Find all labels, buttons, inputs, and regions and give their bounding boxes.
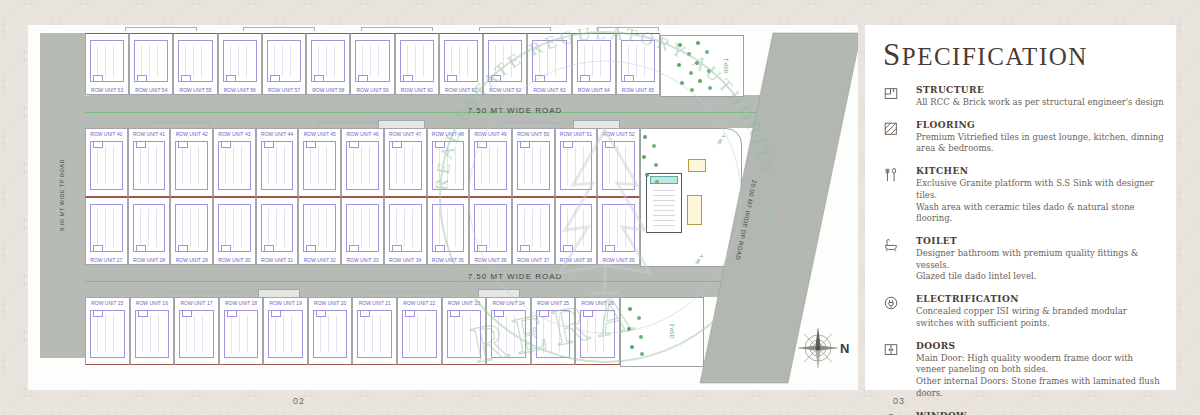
spec-item-heading: WINDOW: [916, 411, 1111, 415]
tree-symbols: [628, 307, 632, 311]
spec-item-heading: DOORS: [916, 341, 1164, 351]
row-unit-plot: ROW UNIT 26: [575, 297, 620, 365]
unit-label: ROW UNIT 42: [171, 131, 212, 137]
spec-item-line: Other internal Doors: Stone frames with …: [916, 376, 1164, 399]
row-unit-plot: ROW UNIT 28: [128, 197, 171, 265]
dimension-line: [361, 27, 433, 31]
unit-label: ROW UNIT 50: [513, 131, 554, 137]
spec-item-text: TOILETDesigner bathroom with premium qua…: [916, 236, 1164, 283]
unit-label: ROW UNIT 40: [86, 131, 127, 137]
specification-page: SPECIFICATION STRUCTUREAll RCC & Brick w…: [865, 25, 1176, 390]
dimension-line: [597, 27, 659, 31]
unit-label: ROW UNIT 45: [299, 131, 340, 137]
row-unit-plot: ROW UNIT 19: [263, 297, 308, 365]
unit-floorplan: [261, 141, 294, 190]
compass-rose: N: [794, 325, 854, 371]
unit-floorplan: [313, 310, 348, 358]
unit-floorplan: [488, 40, 522, 82]
road-centerline: [85, 281, 761, 282]
row-unit-plot: ROW UNIT 27: [85, 197, 128, 265]
unit-label: ROW UNIT 23: [443, 300, 486, 306]
spec-item-heading: TOILET: [916, 236, 1164, 246]
unit-label: ROW UNIT 37: [513, 257, 554, 263]
tree-symbols: [643, 135, 647, 139]
row-unit-plot: ROW UNIT 35: [427, 197, 470, 265]
row-unit-plot: ROW UNIT 37: [512, 197, 555, 265]
row-unit-plot: ROW UNIT 56: [218, 33, 262, 95]
unit-row: ROW UNIT 15ROW UNIT 16ROW UNIT 17ROW UNI…: [85, 297, 620, 365]
amenity-structure: [688, 159, 706, 172]
spec-item-flooring: FLOORINGPremium Vitriefied tiles in gues…: [883, 120, 1164, 155]
unit-label: ROW UNIT 63: [528, 87, 570, 93]
row-unit-plot: ROW UNIT 21: [352, 297, 397, 365]
spec-item-text: FLOORINGPremium Vitriefied tiles in gues…: [916, 120, 1164, 155]
unit-floorplan: [133, 204, 166, 252]
unit-floorplan: [223, 40, 257, 82]
row-unit-plot: ROW UNIT 57: [262, 33, 306, 95]
open-space-label-2: OSP-2: [669, 323, 675, 338]
unit-label: ROW UNIT 64: [573, 87, 615, 93]
row-unit-plot: ROW UNIT 64: [572, 33, 616, 95]
spec-item-text: WINDOWAnodized aluminum window with safe…: [916, 411, 1111, 415]
spec-item-text: STRUCTUREAll RCC & Brick work as per str…: [916, 85, 1164, 109]
unit-floorplan: [179, 310, 214, 358]
unit-label: ROW UNIT 52: [598, 131, 639, 137]
unit-label: ROW UNIT 22: [398, 300, 441, 306]
electrification-icon: [883, 294, 916, 329]
unit-floorplan: [134, 40, 168, 82]
dimension-line: [148, 122, 210, 126]
unit-floorplan: [621, 40, 655, 82]
spec-item-line: Glazed tile dado lintel level.: [916, 271, 1164, 283]
unit-floorplan: [389, 204, 422, 252]
unit-label: ROW UNIT 41: [129, 131, 170, 137]
row-unit-plot: ROW UNIT 43: [213, 128, 256, 197]
row-unit-plot: ROW UNIT 30: [213, 197, 256, 265]
unit-label: ROW UNIT 61: [440, 87, 482, 93]
row-unit-plot: ROW UNIT 47: [384, 128, 427, 197]
unit-label: ROW UNIT 54: [130, 87, 172, 93]
row-unit-plot: ROW UNIT 34: [384, 197, 427, 265]
unit-row: ROW UNIT 27ROW UNIT 28ROW UNIT 29ROW UNI…: [85, 197, 640, 265]
row-unit-plot: ROW UNIT 23: [442, 297, 487, 365]
road-centerline: [85, 112, 765, 113]
unit-row: ROW UNIT 53ROW UNIT 54ROW UNIT 55ROW UNI…: [85, 33, 660, 95]
unit-label: ROW UNIT 32: [299, 257, 340, 263]
window-icon: [883, 411, 916, 415]
unit-floorplan: [402, 310, 437, 358]
dimension-line: [318, 122, 380, 126]
row-unit-plot: ROW UNIT 62: [483, 33, 527, 95]
spec-item-structure: STRUCTUREAll RCC & Brick work as per str…: [883, 85, 1164, 109]
unit-label: ROW UNIT 56: [219, 87, 261, 93]
spec-item-electrification: ELECTRIFICATIONConcealed copper ISI wiri…: [883, 294, 1164, 329]
unit-label: ROW UNIT 59: [351, 87, 393, 93]
row-unit-plot: ROW UNIT 17: [174, 297, 219, 365]
spec-item-doors: DOORSMain Door: High quality woodern fra…: [883, 341, 1164, 400]
unit-label: ROW UNIT 58: [307, 87, 349, 93]
row-unit-plot: ROW UNIT 25: [531, 297, 576, 365]
site-plan-page: 9.00 MT WIDE TP ROAD 7.50 MT WIDE ROAD 7…: [28, 25, 858, 390]
row-unit-plot: ROW UNIT 15: [85, 297, 130, 365]
unit-floorplan: [90, 141, 123, 190]
unit-label: ROW UNIT 17: [175, 300, 218, 306]
row-unit-plot: ROW UNIT 50: [512, 128, 555, 197]
unit-floorplan: [517, 204, 550, 252]
unit-label: ROW UNIT 26: [576, 300, 619, 306]
row-unit-plot: ROW UNIT 52: [597, 128, 640, 197]
dimension-line: [498, 122, 560, 126]
row-unit-plot: ROW UNIT 20: [308, 297, 353, 365]
unit-floorplan: [261, 204, 294, 252]
dimension-line: [243, 27, 315, 31]
row-unit-plot: ROW UNIT 63: [527, 33, 571, 95]
row-unit-plot: ROW UNIT 40: [85, 128, 128, 197]
tree-symbols: [696, 41, 700, 45]
row-unit-plot: ROW UNIT 65: [616, 33, 660, 95]
open-space-label-1: OSP-1: [723, 58, 729, 73]
unit-label: ROW UNIT 28: [129, 257, 170, 263]
unit-floorplan: [303, 204, 336, 252]
row-unit-plot: ROW UNIT 59: [350, 33, 394, 95]
spec-item-toilet: TOILETDesigner bathroom with premium qua…: [883, 236, 1164, 283]
spec-item-text: ELECTRIFICATIONConcealed copper ISI wiri…: [916, 294, 1164, 329]
row-unit-plot: ROW UNIT 42: [170, 128, 213, 197]
specification-list: STRUCTUREAll RCC & Brick work as per str…: [883, 85, 1164, 415]
doors-icon: [883, 341, 916, 400]
unit-label: ROW UNIT 34: [385, 257, 426, 263]
unit-label: ROW UNIT 51: [556, 131, 597, 137]
unit-floorplan: [90, 204, 123, 252]
kitchen-icon: [883, 166, 916, 225]
row-unit-plot: ROW UNIT 48: [427, 128, 470, 197]
row-unit-plot: ROW UNIT 60: [395, 33, 439, 95]
unit-label: ROW UNIT 44: [257, 131, 298, 137]
row-unit-plot: ROW UNIT 31: [256, 197, 299, 265]
row-unit-plot: ROW UNIT 49: [469, 128, 512, 197]
row-unit-plot: ROW UNIT 55: [173, 33, 217, 95]
unit-label: ROW UNIT 43: [214, 131, 255, 137]
flooring-icon: [883, 120, 916, 155]
spec-item-heading: KITCHEN: [916, 166, 1164, 176]
unit-floorplan: [444, 40, 478, 82]
row-unit-plot: ROW UNIT 44: [256, 128, 299, 197]
unit-label: ROW UNIT 20: [309, 300, 352, 306]
spec-item-window: WINDOWAnodized aluminum window with safe…: [883, 411, 1164, 415]
unit-label: ROW UNIT 18: [220, 300, 263, 306]
dimension-line: [368, 291, 440, 295]
row-unit-plot: ROW UNIT 51: [555, 128, 598, 197]
unit-label: ROW UNIT 21: [353, 300, 396, 306]
row-unit-plot: ROW UNIT 46: [341, 128, 384, 197]
page-number-right: 03: [893, 396, 905, 406]
compass-north-label: N: [840, 341, 849, 356]
spec-item-heading: FLOORING: [916, 120, 1164, 130]
unit-label: ROW UNIT 24: [487, 300, 530, 306]
unit-label: ROW UNIT 30: [214, 257, 255, 263]
unit-floorplan: [135, 310, 170, 358]
unit-floorplan: [175, 141, 208, 190]
tree-symbols: [678, 43, 682, 47]
unit-label: ROW UNIT 36: [470, 257, 511, 263]
unit-label: ROW UNIT 25: [532, 300, 575, 306]
row-unit-plot: ROW UNIT 54: [129, 33, 173, 95]
spec-item-heading: ELECTRIFICATION: [916, 294, 1164, 304]
unit-floorplan: [357, 310, 392, 358]
unit-label: ROW UNIT 62: [484, 87, 526, 93]
row-unit-plot: ROW UNIT 32: [298, 197, 341, 265]
unit-label: ROW UNIT 27: [86, 257, 127, 263]
unit-floorplan: [560, 141, 593, 190]
unit-floorplan: [474, 204, 507, 252]
row-unit-plot: ROW UNIT 61: [439, 33, 483, 95]
amenity-structure: [687, 195, 702, 225]
row-unit-plot: ROW UNIT 22: [397, 297, 442, 365]
spec-item-heading: STRUCTURE: [916, 85, 1164, 95]
unit-label: ROW UNIT 57: [263, 87, 305, 93]
unit-label: ROW UNIT 53: [86, 87, 128, 93]
unit-label: ROW UNIT 31: [257, 257, 298, 263]
clubhouse-building: [646, 173, 682, 233]
unit-label: ROW UNIT 49: [470, 131, 511, 137]
unit-floorplan: [602, 204, 635, 252]
row-unit-plot: ROW UNIT 33: [341, 197, 384, 265]
unit-floorplan: [311, 40, 345, 82]
top-road-label: 7.50 MT WIDE ROAD: [445, 106, 585, 115]
row-unit-plot: ROW UNIT 16: [130, 297, 175, 365]
unit-floorplan: [267, 40, 301, 82]
unit-floorplan: [90, 40, 124, 82]
spec-item-kitchen: KITCHENExclusive Granite platform with S…: [883, 166, 1164, 225]
unit-floorplan: [303, 141, 336, 190]
row-unit-plot: ROW UNIT 24: [486, 297, 531, 365]
unit-floorplan: [560, 204, 593, 252]
spec-item-text: KITCHENExclusive Granite platform with S…: [916, 166, 1164, 225]
unit-label: ROW UNIT 33: [342, 257, 383, 263]
spec-item-line: Main Door: High quality woodern frame do…: [916, 353, 1164, 376]
dimension-line: [125, 27, 197, 31]
unit-floorplan: [175, 204, 208, 252]
unit-floorplan: [432, 204, 465, 252]
unit-floorplan: [224, 310, 259, 358]
spec-item-line: Premium Vitriefied tiles in guest lounge…: [916, 132, 1164, 155]
unit-floorplan: [577, 40, 611, 82]
dimension-line: [168, 291, 240, 295]
page-number-left: 02: [293, 396, 305, 406]
brochure-spread: 9.00 MT WIDE TP ROAD 7.50 MT WIDE ROAD 7…: [0, 0, 1200, 415]
unit-label: ROW UNIT 48: [428, 131, 469, 137]
unit-floorplan: [218, 141, 251, 190]
row-unit-plot: ROW UNIT 29: [170, 197, 213, 265]
unit-floorplan: [400, 40, 434, 82]
structure-icon: [883, 85, 916, 109]
unit-label: ROW UNIT 60: [396, 87, 438, 93]
unit-floorplan: [491, 310, 526, 358]
unit-label: ROW UNIT 47: [385, 131, 426, 137]
unit-row: ROW UNIT 40ROW UNIT 41ROW UNIT 42ROW UNI…: [85, 128, 640, 197]
unit-floorplan: [580, 310, 615, 358]
spec-item-line: Exclusive Granite platform with S.S Sink…: [916, 178, 1164, 201]
unit-floorplan: [474, 141, 507, 190]
unit-floorplan: [268, 310, 303, 358]
unit-floorplan: [133, 141, 166, 190]
row-unit-plot: ROW UNIT 39: [597, 197, 640, 265]
unit-label: ROW UNIT 35: [428, 257, 469, 263]
unit-label: ROW UNIT 19: [264, 300, 307, 306]
bottom-road-label: 7.50 MT WIDE ROAD: [445, 272, 585, 281]
row-unit-plot: ROW UNIT 18: [219, 297, 264, 365]
unit-floorplan: [517, 141, 550, 190]
unit-floorplan: [532, 40, 566, 82]
row-unit-plot: ROW UNIT 45: [298, 128, 341, 197]
unit-floorplan: [346, 204, 379, 252]
row-unit-plot: ROW UNIT 58: [306, 33, 350, 95]
unit-label: ROW UNIT 55: [174, 87, 216, 93]
unit-floorplan: [355, 40, 389, 82]
unit-label: ROW UNIT 46: [342, 131, 383, 137]
unit-floorplan: [90, 310, 125, 358]
unit-floorplan: [447, 310, 482, 358]
spec-item-text: DOORSMain Door: High quality woodern fra…: [916, 341, 1164, 400]
tp-road-label: 9.00 MT WIDE TP ROAD: [59, 159, 65, 231]
unit-label: ROW UNIT 39: [598, 257, 639, 263]
spec-item-line: Wash area with ceramic tiles dado & natu…: [916, 202, 1164, 225]
unit-label: ROW UNIT 65: [617, 87, 659, 93]
spec-item-line: All RCC & Brick work as per structural e…: [916, 97, 1164, 109]
spec-item-line: Concealed copper ISI wiring & branded mo…: [916, 306, 1164, 329]
spec-item-line: Designer bathroom with premium quality f…: [916, 248, 1164, 271]
unit-floorplan: [346, 141, 379, 190]
row-unit-plot: ROW UNIT 53: [85, 33, 129, 95]
unit-floorplan: [602, 141, 635, 190]
unit-floorplan: [178, 40, 212, 82]
unit-floorplan: [536, 310, 571, 358]
unit-label: ROW UNIT 15: [86, 300, 129, 306]
unit-label: ROW UNIT 29: [171, 257, 212, 263]
unit-label: ROW UNIT 38: [556, 257, 597, 263]
open-space-plot-1: [660, 35, 744, 97]
dimension-line: [479, 27, 551, 31]
page-title: SPECIFICATION: [883, 37, 1088, 73]
unit-floorplan: [432, 141, 465, 190]
unit-label: ROW UNIT 16: [131, 300, 174, 306]
row-unit-plot: ROW UNIT 41: [128, 128, 171, 197]
unit-floorplan: [389, 141, 422, 190]
open-space-plot-2: [620, 297, 704, 367]
row-unit-plot: ROW UNIT 38: [555, 197, 598, 265]
toilet-icon: [883, 236, 916, 283]
unit-floorplan: [218, 204, 251, 252]
row-unit-plot: ROW UNIT 36: [469, 197, 512, 265]
